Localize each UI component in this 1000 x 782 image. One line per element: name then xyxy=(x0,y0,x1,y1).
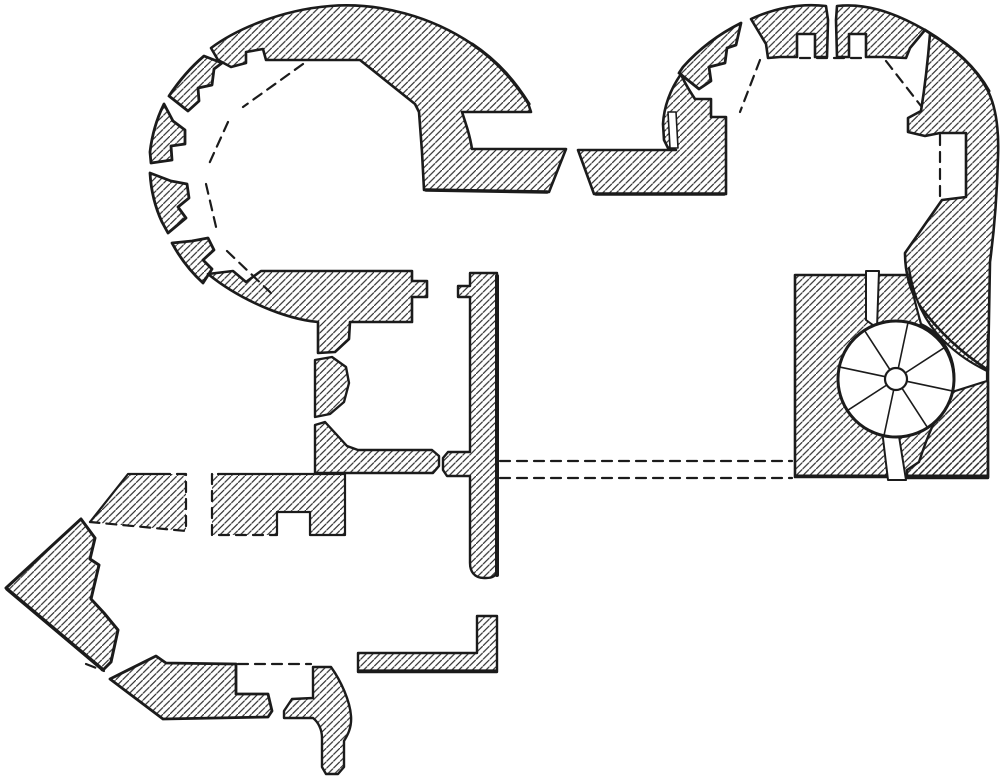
pier-lower-cross-wall xyxy=(315,422,439,473)
tower-left-wall xyxy=(211,5,566,192)
central-spine-wall xyxy=(443,273,497,578)
tower-right-merlon-ne xyxy=(836,5,925,58)
beak-bastion-lower-wall xyxy=(110,656,272,719)
l-shaped-wall-south xyxy=(358,616,497,672)
tower-left-embrasure-chord-3 xyxy=(206,184,217,231)
pier-middle xyxy=(315,357,349,417)
tower-left-merlon-nw xyxy=(169,56,222,111)
spiral-stair-newel xyxy=(885,368,907,390)
tower-left-merlon-w xyxy=(150,104,185,163)
tower-right-embrasure-chord-east xyxy=(886,61,921,106)
tower-right-embrasure-chord-west xyxy=(740,60,760,112)
tower-right-merlon-nw xyxy=(751,5,828,58)
curved-pier-south xyxy=(284,667,351,774)
tower-left-embrasure-chord-1 xyxy=(243,64,303,107)
gate-right-rebate-slit xyxy=(668,112,678,148)
castle-plan-figure xyxy=(0,0,1000,782)
tower-left-merlon-s xyxy=(172,238,214,283)
tower-left-embrasure-chord-2 xyxy=(209,122,228,164)
tower-left-merlon-sw xyxy=(150,173,189,233)
castle-plan-canvas xyxy=(0,0,1000,782)
tower-right-west-gate-wall xyxy=(578,74,726,194)
stair-entry-slit-top xyxy=(866,271,879,328)
tower-left-south-wall xyxy=(208,271,427,353)
beak-bastion-upper xyxy=(6,519,118,670)
tower-right-merlon-w xyxy=(679,23,741,89)
outwork-dashed-mid-fill xyxy=(212,474,345,535)
castle-plan-page xyxy=(0,0,1000,782)
gate-left-wall-shadow-edge xyxy=(426,190,547,192)
